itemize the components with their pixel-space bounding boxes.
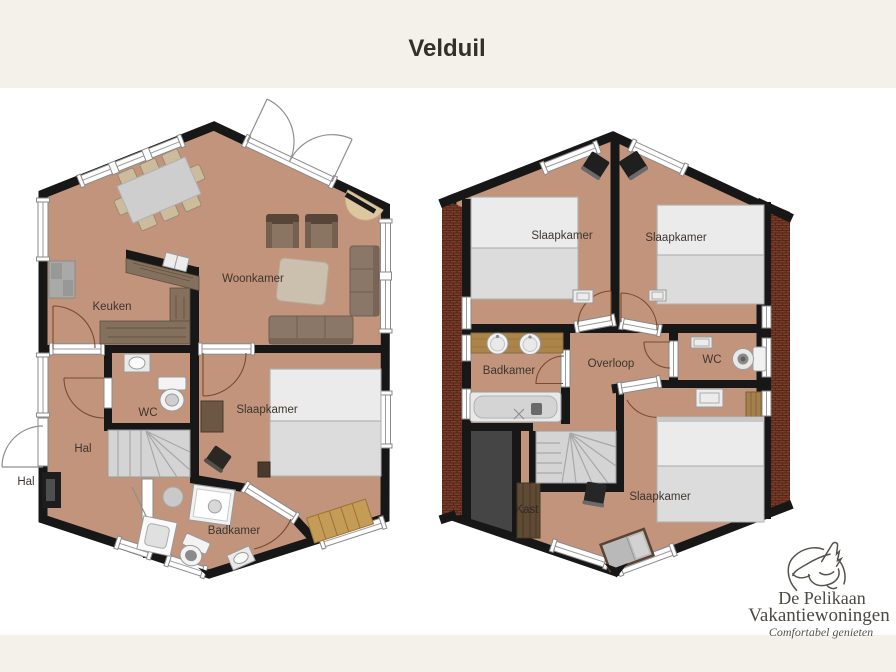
svg-text:Hal: Hal (17, 476, 34, 488)
svg-text:Slaapkamer: Slaapkamer (236, 404, 298, 416)
svg-text:WC: WC (138, 407, 157, 419)
svg-text:Badkamer: Badkamer (208, 525, 261, 537)
svg-text:Slaapkamer: Slaapkamer (531, 230, 593, 242)
svg-text:Keuken: Keuken (92, 301, 131, 313)
svg-text:Comfortabel genieten: Comfortabel genieten (769, 625, 873, 639)
svg-text:Slaapkamer: Slaapkamer (629, 491, 691, 503)
svg-text:WC: WC (702, 354, 721, 366)
svg-text:Hal: Hal (74, 443, 91, 455)
svg-text:Overloop: Overloop (588, 358, 635, 370)
svg-text:Slaapkamer: Slaapkamer (645, 232, 707, 244)
svg-text:Badkamer: Badkamer (483, 365, 536, 377)
svg-text:Woonkamer: Woonkamer (222, 273, 284, 285)
svg-text:Vakantiewoningen: Vakantiewoningen (748, 605, 890, 626)
svg-text:Kast: Kast (515, 504, 539, 516)
svg-text:Velduil: Velduil (408, 35, 485, 62)
